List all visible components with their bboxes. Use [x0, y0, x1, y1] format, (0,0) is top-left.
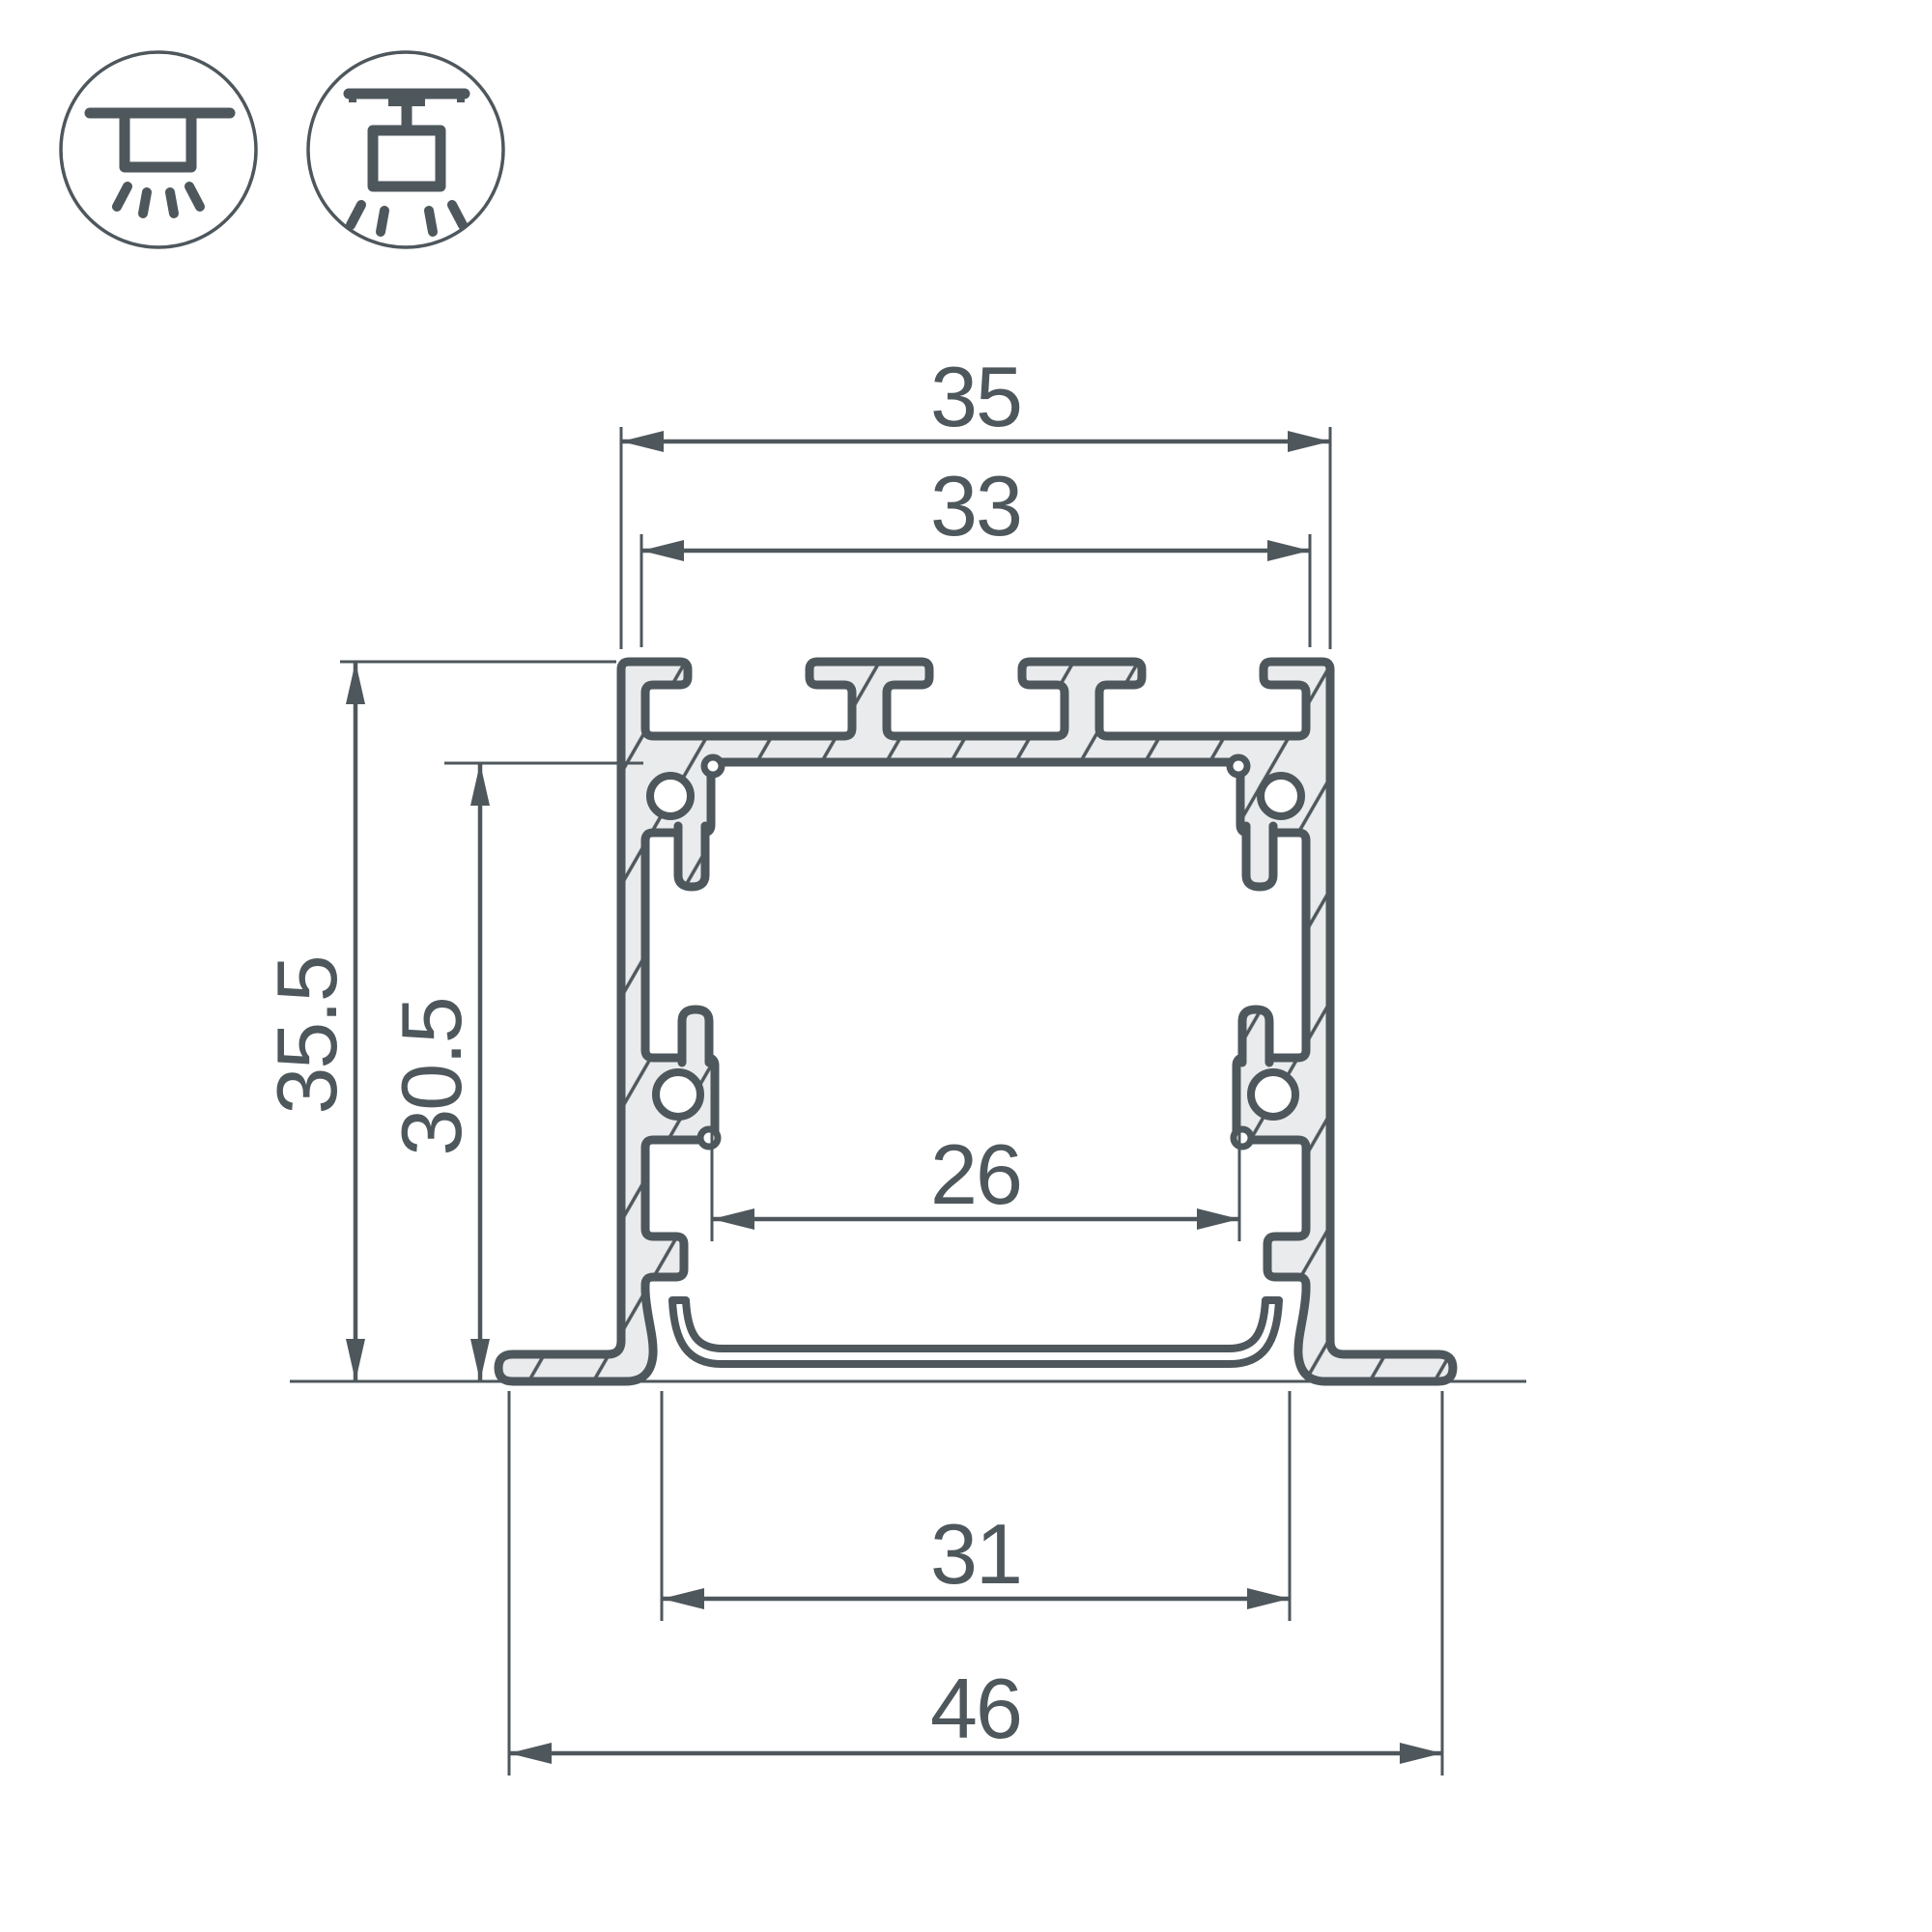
profile-cross-section: [498, 662, 1453, 1381]
recessed-mount-icon: [61, 52, 256, 247]
dim-label-31: 31: [930, 1506, 1021, 1602]
drawing-page: 35 33 35.5 30.5 26: [0, 0, 1932, 1932]
dim-label-46: 46: [930, 1661, 1021, 1756]
dim-label-30-5: 30.5: [384, 998, 479, 1155]
icon-circle: [61, 52, 256, 247]
dimension-recess-width: 31: [662, 1391, 1290, 1621]
dimension-top-inner-width: 33: [641, 458, 1310, 647]
profile-technical-drawing: 35 33 35.5 30.5 26: [0, 0, 1932, 1932]
dim-label-35-5: 35.5: [259, 956, 355, 1114]
dim-label-33: 33: [930, 458, 1021, 554]
surface-mount-icon: [308, 52, 503, 247]
icon-circle: [308, 52, 503, 247]
light-rays: [117, 186, 200, 213]
dimension-cavity-width: 26: [712, 1063, 1239, 1241]
dimension-inner-height: 30.5: [384, 763, 643, 1381]
clip-notches: [700, 757, 1251, 1147]
dim-label-26: 26: [930, 1126, 1021, 1222]
bottom-pan: [672, 1300, 1279, 1364]
dim-label-35: 35: [930, 349, 1021, 444]
clip-sockets: [650, 776, 1301, 1117]
light-rays: [351, 205, 463, 232]
